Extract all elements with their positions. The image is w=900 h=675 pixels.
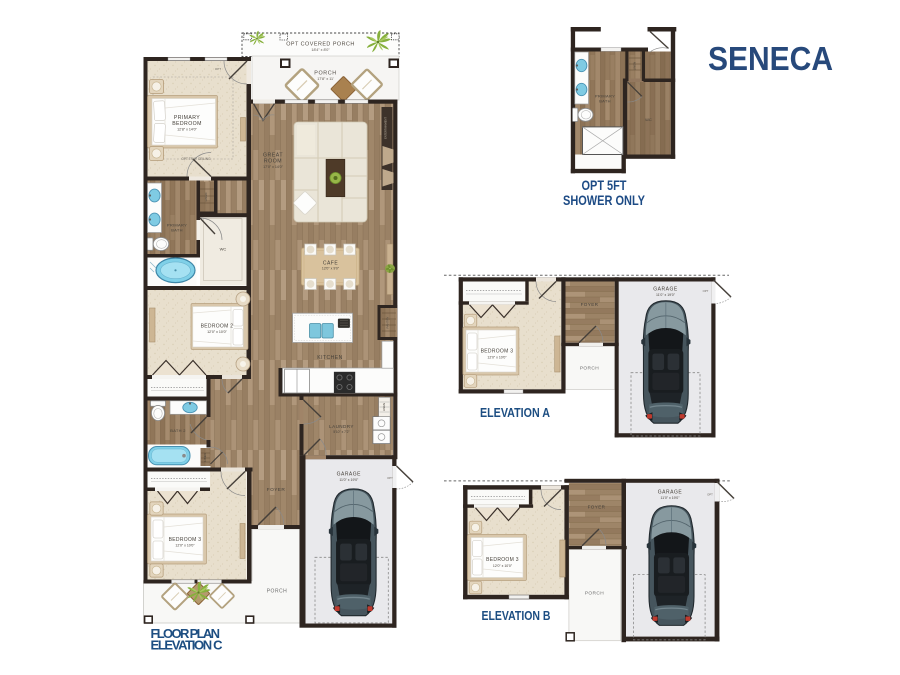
svg-text:BEDROOM 3: BEDROOM 3 [486, 557, 519, 563]
svg-text:GARAGE: GARAGE [653, 287, 678, 293]
svg-text:BEDROOM: BEDROOM [172, 121, 202, 127]
svg-text:PORCH: PORCH [580, 366, 599, 372]
svg-text:ELEVATION B: ELEVATION B [482, 608, 551, 623]
svg-text:PORCH: PORCH [314, 71, 336, 77]
svg-text:OPT COVERED PORCH: OPT COVERED PORCH [286, 42, 355, 48]
svg-text:OPT: OPT [215, 67, 221, 71]
svg-text:12'0" x 10'0": 12'0" x 10'0" [493, 564, 513, 568]
svg-text:11'0" x 19'0": 11'0" x 19'0" [661, 496, 681, 500]
svg-text:KITCHEN: KITCHEN [317, 355, 342, 361]
svg-text:FOYER: FOYER [588, 505, 606, 510]
svg-text:17'8" x 11': 17'8" x 11' [317, 77, 334, 81]
svg-text:11'0" x 19'0": 11'0" x 19'0" [656, 293, 676, 297]
svg-text:12'0" x 10'0": 12'0" x 10'0" [175, 544, 195, 548]
svg-text:OPT 5FT: OPT 5FT [582, 177, 627, 193]
svg-text:BEDROOM 3: BEDROOM 3 [481, 349, 514, 355]
svg-text:BATH: BATH [171, 228, 183, 233]
svg-text:5'10" x 7'2": 5'10" x 7'2" [333, 430, 350, 434]
svg-text:PORCH: PORCH [267, 589, 288, 595]
svg-text:SHOWER ONLY: SHOWER ONLY [563, 192, 646, 208]
svg-text:12'8" x 14'0": 12'8" x 14'0" [177, 128, 197, 132]
svg-text:BEDROOM 2: BEDROOM 2 [201, 324, 234, 330]
svg-text:11'0" x 19'0": 11'0" x 19'0" [339, 478, 359, 482]
svg-text:OPT TRAY CEILING: OPT TRAY CEILING [181, 157, 211, 161]
svg-text:12'0" x 9'0": 12'0" x 9'0" [322, 267, 340, 271]
svg-text:ENTERTAINMENT: ENTERTAINMENT [384, 117, 388, 139]
svg-text:ELEVATION C: ELEVATION C [151, 638, 224, 653]
svg-text:BATH: BATH [599, 99, 611, 104]
svg-text:BEDROOM 3: BEDROOM 3 [169, 537, 202, 543]
svg-text:17'0" x 14'0": 17'0" x 14'0" [263, 165, 283, 169]
svg-text:12'0" x 10'0": 12'0" x 10'0" [207, 330, 227, 334]
svg-text:GARAGE: GARAGE [658, 490, 683, 496]
svg-text:LINEN: LINEN [382, 403, 386, 411]
svg-text:ELEVATION A: ELEVATION A [480, 405, 551, 420]
svg-text:LAUNDRY: LAUNDRY [329, 424, 354, 429]
svg-text:FOYER: FOYER [581, 302, 599, 307]
svg-text:12'0" x 10'0": 12'0" x 10'0" [487, 356, 507, 360]
svg-text:ROOM: ROOM [264, 159, 282, 165]
svg-text:GARAGE: GARAGE [337, 472, 362, 478]
svg-text:FOYER: FOYER [267, 487, 286, 493]
svg-text:WC: WC [220, 247, 227, 252]
svg-text:SENECA: SENECA [708, 40, 833, 77]
svg-text:LINEN: LINEN [204, 193, 208, 202]
svg-text:PANTRY: PANTRY [386, 317, 390, 329]
svg-text:18'4" x 8'0": 18'4" x 8'0" [311, 48, 330, 52]
svg-text:OPT: OPT [703, 289, 709, 293]
svg-text:OPT: OPT [707, 493, 713, 497]
svg-text:LINEN: LINEN [203, 453, 207, 461]
svg-text:PORCH: PORCH [585, 591, 604, 597]
svg-text:WC: WC [645, 117, 652, 122]
svg-text:BATH 2: BATH 2 [170, 428, 186, 433]
svg-text:LINEN: LINEN [633, 62, 637, 71]
svg-text:OPT: OPT [387, 476, 393, 480]
